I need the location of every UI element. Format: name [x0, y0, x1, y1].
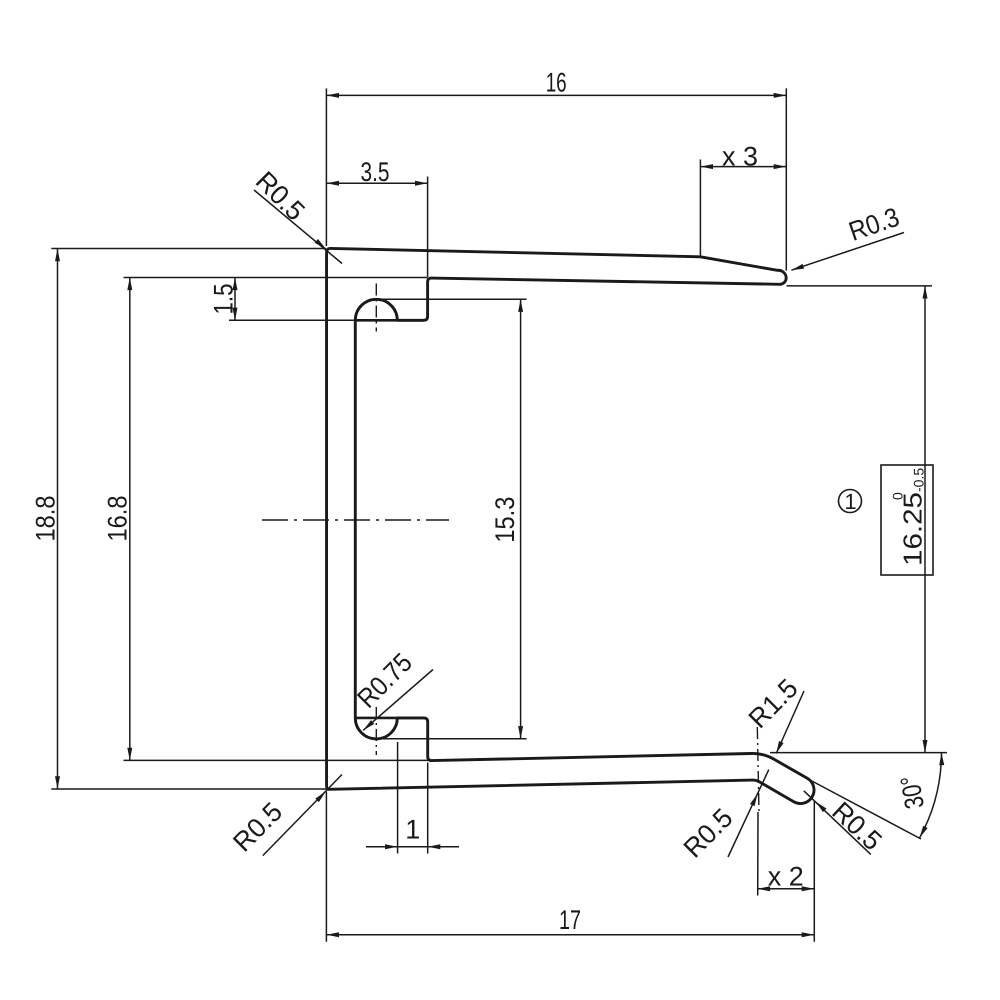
svg-text:-0.5: -0.5 — [911, 468, 927, 492]
svg-text:0: 0 — [890, 492, 906, 500]
svg-text:1: 1 — [405, 815, 420, 845]
svg-text:15.3: 15.3 — [490, 497, 520, 543]
svg-text:x 2: x 2 — [768, 861, 804, 891]
svg-text:17: 17 — [559, 905, 581, 935]
svg-text:1: 1 — [844, 489, 856, 514]
svg-text:1.5: 1.5 — [209, 284, 239, 315]
svg-text:16: 16 — [546, 68, 567, 98]
svg-text:16.25: 16.25 — [898, 492, 928, 566]
svg-text:3.5: 3.5 — [361, 157, 390, 187]
svg-text:x 3: x 3 — [722, 142, 758, 172]
svg-text:16.8: 16.8 — [103, 496, 133, 542]
svg-text:30°: 30° — [895, 774, 930, 812]
svg-text:18.8: 18.8 — [31, 496, 61, 542]
